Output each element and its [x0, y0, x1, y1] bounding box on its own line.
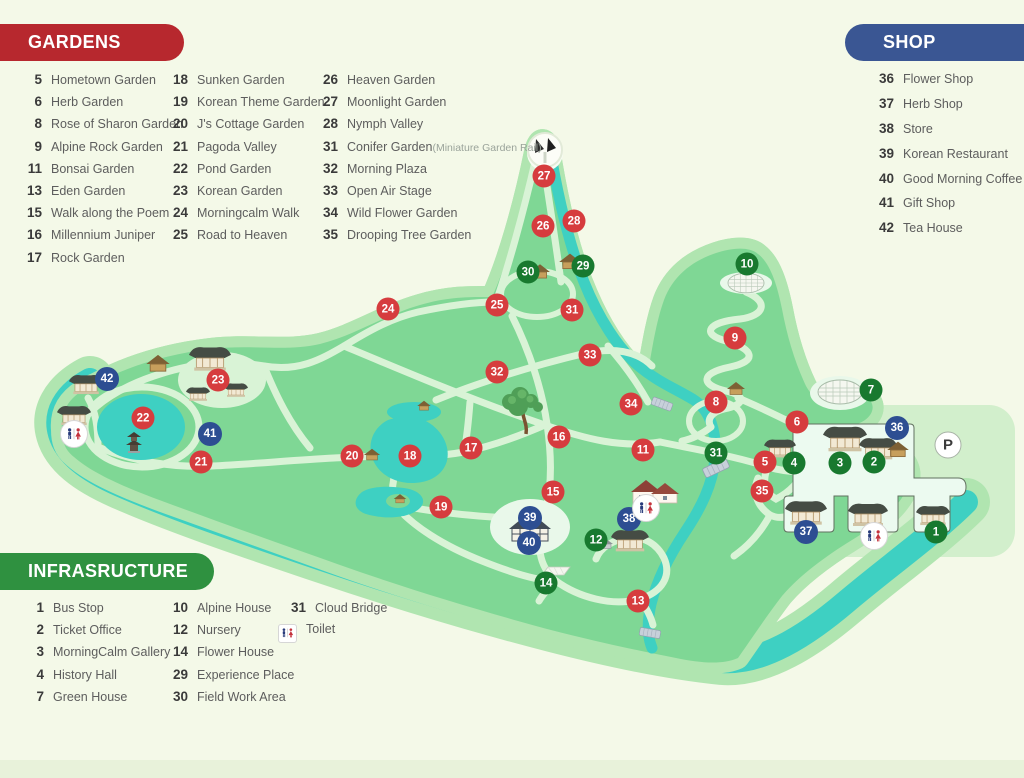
toilet-icon — [60, 420, 88, 448]
map-marker-25: 25 — [486, 294, 509, 317]
map-marker-19: 19 — [430, 496, 453, 519]
map-marker-33: 33 — [579, 344, 602, 367]
legend-item-label: Nymph Valley — [347, 117, 423, 131]
map-marker-29: 29 — [572, 255, 595, 278]
legend-item: Toilet — [278, 622, 387, 644]
map-marker-11: 11 — [632, 439, 655, 462]
legend-item-number: 14 — [158, 644, 188, 659]
legend-item-label: J's Cottage Garden — [197, 117, 304, 131]
legend-item-label: Morning Plaza — [347, 162, 427, 176]
legend-item-sublabel: (Miniature Garden Rail) — [432, 142, 541, 154]
map-marker-18: 18 — [399, 445, 422, 468]
toilet-icon — [281, 628, 294, 638]
legend-item-label: Experience Place — [197, 668, 294, 682]
legend-item: 36Flower Shop — [866, 71, 1022, 96]
legend-item-number: 18 — [158, 72, 188, 87]
toilet-icon — [860, 522, 888, 550]
legend-item: 38Store — [866, 121, 1022, 146]
map-marker-22: 22 — [132, 407, 155, 430]
legend-item-number: 17 — [18, 250, 42, 265]
map-marker-28: 28 — [563, 210, 586, 233]
legend-item-number: 22 — [158, 161, 188, 176]
legend-item: 23Korean Garden — [158, 183, 325, 205]
legend-item: 18Sunken Garden — [158, 72, 325, 94]
map-marker-9: 9 — [724, 327, 747, 350]
map-marker-37: 37 — [794, 520, 818, 544]
legend-item-label: Nursery — [197, 623, 241, 637]
map-marker-30: 30 — [517, 261, 540, 284]
legend-item: 26Heaven Garden — [308, 72, 542, 94]
legend-item-number: 39 — [866, 146, 894, 161]
legend-item-label: Korean Theme Garden — [197, 95, 325, 109]
legend-item: 41Gift Shop — [866, 195, 1022, 220]
map-marker-6: 6 — [786, 411, 809, 434]
legend-item: 33Open Air Stage — [308, 183, 542, 205]
legend-item-number: 16 — [18, 227, 42, 242]
legend-item-number: 33 — [308, 183, 338, 198]
legend-item: 32Morning Plaza — [308, 161, 542, 183]
legend-item-number: 28 — [308, 116, 338, 131]
legend-item-label: Ticket Office — [53, 623, 122, 637]
legend-item-number: 31 — [308, 139, 338, 154]
map-marker-1: 1 — [925, 521, 948, 544]
infrastructure-banner: INFRASRUCTURE — [0, 553, 214, 590]
map-marker-23: 23 — [207, 369, 230, 392]
legend-item-label: Conifer Garden(Miniature Garden Rail) — [347, 140, 542, 154]
legend-item-number: 26 — [308, 72, 338, 87]
legend-item-number: 30 — [158, 689, 188, 704]
legend-item-label: Drooping Tree Garden — [347, 228, 471, 242]
legend-item: 40Good Morning Coffee — [866, 171, 1022, 196]
legend-item-label: Bus Stop — [53, 601, 104, 615]
legend-item-number: 3 — [22, 644, 44, 659]
legend-item-label: Gift Shop — [903, 196, 955, 210]
legend-item: 12Nursery — [158, 622, 294, 644]
legend-item-number: 36 — [866, 71, 894, 86]
legend-item-label: Flower House — [197, 645, 274, 659]
toilet-icon — [278, 624, 297, 643]
legend-item-number: 11 — [18, 161, 42, 176]
legend-item-label: Herb Shop — [903, 97, 963, 111]
legend-item-number: 9 — [18, 139, 42, 154]
legend-item-number: 37 — [866, 96, 894, 111]
toilet-icon — [66, 428, 82, 440]
map-marker-32: 32 — [486, 361, 509, 384]
legend-item: 22Pond Garden — [158, 161, 325, 183]
legend-item-number: 12 — [158, 622, 188, 637]
legend-item-label: Pagoda Valley — [197, 140, 277, 154]
legend-item-label: Bonsai Garden — [51, 162, 134, 176]
parking-icon: P — [935, 432, 962, 459]
legend-item: 35Drooping Tree Garden — [308, 227, 542, 249]
map-marker-4: 4 — [783, 452, 806, 475]
legend-item-number: 21 — [158, 139, 188, 154]
map-marker-20: 20 — [341, 445, 364, 468]
legend-item-label: Sunken Garden — [197, 73, 285, 87]
legend-item-label: Good Morning Coffee — [903, 172, 1022, 186]
legend-item-label: Korean Garden — [197, 184, 282, 198]
legend-item-label: Toilet — [306, 622, 335, 636]
map-marker-42: 42 — [95, 367, 119, 391]
gardens-title: GARDENS — [28, 32, 121, 53]
legend-item-label: History Hall — [53, 668, 117, 682]
legend-item-label: Herb Garden — [51, 95, 123, 109]
legend-item-label: Cloud Bridge — [315, 601, 387, 615]
infrastructure-list-col2: 10Alpine House12Nursery14Flower House29E… — [158, 600, 294, 711]
legend-item: 30Field Work Area — [158, 689, 294, 711]
legend-item-label: MorningCalm Gallery — [53, 645, 170, 659]
legend-item-number: 7 — [22, 689, 44, 704]
legend-item-label: Store — [903, 122, 933, 136]
legend-item-label: Wild Flower Garden — [347, 206, 457, 220]
map-marker-21: 21 — [190, 451, 213, 474]
legend-item-number: 5 — [18, 72, 42, 87]
legend-item: 10Alpine House — [158, 600, 294, 622]
legend-item-label: Green House — [53, 690, 127, 704]
legend-item-number: 23 — [158, 183, 188, 198]
legend-item-number: 38 — [866, 121, 894, 136]
toilet-icon — [632, 494, 660, 522]
shop-banner: SHOP — [845, 24, 1024, 61]
legend-item-number: 32 — [308, 161, 338, 176]
map-marker-16: 16 — [548, 426, 571, 449]
map-marker-14: 14 — [535, 572, 558, 595]
map-marker-39: 39 — [518, 506, 542, 530]
gardens-banner: GARDENS — [0, 24, 184, 61]
map-marker-3: 3 — [829, 452, 852, 475]
map-marker-34: 34 — [620, 393, 643, 416]
legend-item-number: 8 — [18, 116, 42, 131]
map-marker-40: 40 — [517, 531, 541, 555]
shop-list: 36Flower Shop37Herb Shop38Store39Korean … — [866, 71, 1022, 245]
legend-item: 17Rock Garden — [18, 250, 183, 272]
legend-item: 1Bus Stop — [22, 600, 170, 622]
shop-title: SHOP — [883, 32, 936, 53]
legend-item: 4History Hall — [22, 667, 170, 689]
legend-item-label: Eden Garden — [51, 184, 125, 198]
legend-item-number: 27 — [308, 94, 338, 109]
legend-item-label: Field Work Area — [197, 690, 286, 704]
map-marker-41: 41 — [198, 422, 222, 446]
infrastructure-title: INFRASRUCTURE — [28, 561, 188, 582]
legend-item-number: 4 — [22, 667, 44, 682]
legend-item: 29Experience Place — [158, 667, 294, 689]
legend-item-number: 25 — [158, 227, 188, 242]
map-marker-7: 7 — [860, 379, 883, 402]
legend-item-label: Heaven Garden — [347, 73, 435, 87]
legend-item: 25Road to Heaven — [158, 227, 325, 249]
legend-item-number: 2 — [22, 622, 44, 637]
map-marker-5: 5 — [754, 451, 777, 474]
infrastructure-list-col3: 31Cloud BridgeToilet — [278, 600, 387, 644]
map-marker-2: 2 — [863, 451, 886, 474]
legend-item-label: Pond Garden — [197, 162, 271, 176]
infrastructure-list-col1: 1Bus Stop2Ticket Office3MorningCalm Gall… — [22, 600, 170, 711]
legend-item-number: 41 — [866, 195, 894, 210]
legend-item-number: 13 — [18, 183, 42, 198]
legend-item-number: 1 — [22, 600, 44, 615]
toilet-icon — [866, 530, 882, 542]
map-marker-17: 17 — [460, 437, 483, 460]
legend-item: 39Korean Restaurant — [866, 146, 1022, 171]
map-marker-8: 8 — [705, 391, 728, 414]
legend-item: 2Ticket Office — [22, 622, 170, 644]
legend-item-label: Walk along the Poem — [51, 206, 169, 220]
legend-item-number: 24 — [158, 205, 188, 220]
map-marker-35: 35 — [751, 480, 774, 503]
legend-item: 27Moonlight Garden — [308, 94, 542, 116]
map-marker-31: 31 — [561, 299, 584, 322]
legend-item: 42Tea House — [866, 220, 1022, 245]
legend-item: 24Morningcalm Walk — [158, 205, 325, 227]
legend-item-number: 42 — [866, 220, 894, 235]
legend-item-number: 40 — [866, 171, 894, 186]
legend-item: 34Wild Flower Garden — [308, 205, 542, 227]
legend-item-label: Rock Garden — [51, 251, 125, 265]
legend-item-label: Tea House — [903, 221, 963, 235]
map-marker-36: 36 — [885, 416, 909, 440]
legend-item: 19Korean Theme Garden — [158, 94, 325, 116]
map-marker-12: 12 — [585, 529, 608, 552]
legend-item-number: 15 — [18, 205, 42, 220]
legend-item: 14Flower House — [158, 644, 294, 666]
legend-item-number: 34 — [308, 205, 338, 220]
legend-item-number: 35 — [308, 227, 338, 242]
toilet-icon — [638, 502, 654, 514]
legend-item: 20J's Cottage Garden — [158, 116, 325, 138]
legend-item-label: Flower Shop — [903, 72, 973, 86]
legend-item-number: 20 — [158, 116, 188, 131]
legend-item: 31Cloud Bridge — [278, 600, 387, 622]
legend-item: 3MorningCalm Gallery — [22, 644, 170, 666]
map-marker-15: 15 — [542, 481, 565, 504]
map-marker-31: 31 — [705, 442, 728, 465]
legend-item-label: Alpine Rock Garden — [51, 140, 163, 154]
legend-item-label: Open Air Stage — [347, 184, 432, 198]
legend-item-label: Korean Restaurant — [903, 147, 1008, 161]
legend-item: 28Nymph Valley — [308, 116, 542, 138]
legend-item-number: 6 — [18, 94, 42, 109]
legend-item-label: Millennium Juniper — [51, 228, 155, 242]
legend-item-number: 29 — [158, 667, 188, 682]
map-marker-10: 10 — [736, 253, 759, 276]
legend-item-number: 19 — [158, 94, 188, 109]
legend-item: 7Green House — [22, 689, 170, 711]
legend-item: 31Conifer Garden(Miniature Garden Rail) — [308, 139, 542, 161]
legend-item: 37Herb Shop — [866, 96, 1022, 121]
legend-item-label: Hometown Garden — [51, 73, 156, 87]
legend-item-label: Moonlight Garden — [347, 95, 446, 109]
legend-item-label: Alpine House — [197, 601, 271, 615]
gardens-list-col3: 26Heaven Garden27Moonlight Garden28Nymph… — [308, 72, 542, 250]
legend-item-label: Morningcalm Walk — [197, 206, 299, 220]
legend-item-number: 31 — [278, 600, 306, 615]
legend-item: 21Pagoda Valley — [158, 139, 325, 161]
gardens-list-col2: 18Sunken Garden19Korean Theme Garden20J'… — [158, 72, 325, 250]
legend-item-label: Road to Heaven — [197, 228, 287, 242]
legend-item-number: 10 — [158, 600, 188, 615]
map-marker-13: 13 — [627, 590, 650, 613]
map-marker-24: 24 — [377, 298, 400, 321]
